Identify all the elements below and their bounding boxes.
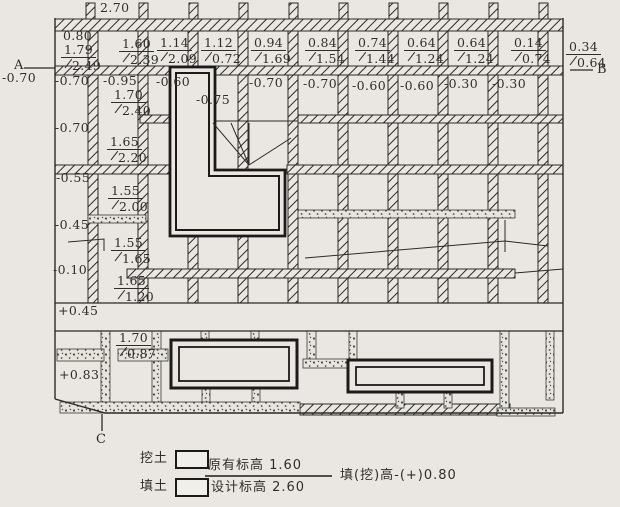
spot-elevation: 1.65 2.20 [107,135,147,164]
spot-elevation: 0.74 1.44 [355,36,395,65]
leader-fan-lines [213,123,291,165]
cut-height: -0.55 [56,172,90,185]
axis-label-c: C [96,433,106,446]
cut-height: -0.70 [249,77,283,90]
spot-elevation: 0.80 1.79 2.49 [61,29,101,72]
corner-elevation: 2.70 [100,2,129,15]
building-rect-east [348,360,492,392]
spot-elevation: 1.70 2.40 [111,88,151,117]
cut-height: -0.95 [103,75,137,88]
building-rect-west [171,340,297,388]
cut-height: -0.70 [55,122,89,135]
cut-height: -0.30 [444,78,478,91]
spot-elevation: 1.60 2.39 [119,37,159,66]
legend-note: 填(挖)高-(+)0.80 [340,469,457,482]
spot-elevation: 0.94 1.69 [251,36,291,65]
spot-elevation: 0.84 1.54 [305,36,345,65]
cut-height: -0.70 [303,78,337,91]
spot-elevation: 1.65 1.20 [114,274,154,303]
spot-elevation: 1.14 2.09 [157,36,197,65]
legend-cut-swatch [176,451,208,468]
spot-elevation: 0.64 1.24 [454,36,494,65]
axis-a-value: -0.70 [2,72,36,85]
cut-height: -0.30 [492,78,526,91]
cut-height: -0.60 [156,76,190,89]
grid-top-stubs [86,3,548,20]
legend-fill-swatch [176,479,208,496]
legend-design-elevation: 设计标高 2.60 [211,481,305,494]
spot-elevation: 1.70 0.87 [116,331,156,360]
spot-elevation: 1.12 0.72 [201,36,241,65]
spot-elevation: 0.64 1.24 [404,36,444,65]
spot-elevation: 1.55 2.00 [108,184,148,213]
cut-height: -0.10 [53,264,87,277]
site-grading-plan: 2.70 A -0.70 B C 0.80 1.79 2.49 1.60 2.3… [0,0,620,507]
spot-elevation: 1.55 1.65 [111,236,151,265]
legend-original-elevation: 原有标高 1.60 [208,459,302,472]
spot-elevation: 0.34 0.64 [566,40,606,69]
fill-height: +0.83 [59,369,99,382]
fill-height: +0.45 [58,305,98,318]
cut-height: -0.60 [352,80,386,93]
legend-cut-label: 挖土 [140,452,168,465]
cut-height: -0.60 [400,80,434,93]
cut-height: -0.75 [196,94,230,107]
legend-fill-label: 填土 [140,480,168,493]
cut-height: -0.45 [55,219,89,232]
cut-height: -0.70 [55,75,89,88]
spot-elevation: 0.14 0.74 [511,36,551,65]
